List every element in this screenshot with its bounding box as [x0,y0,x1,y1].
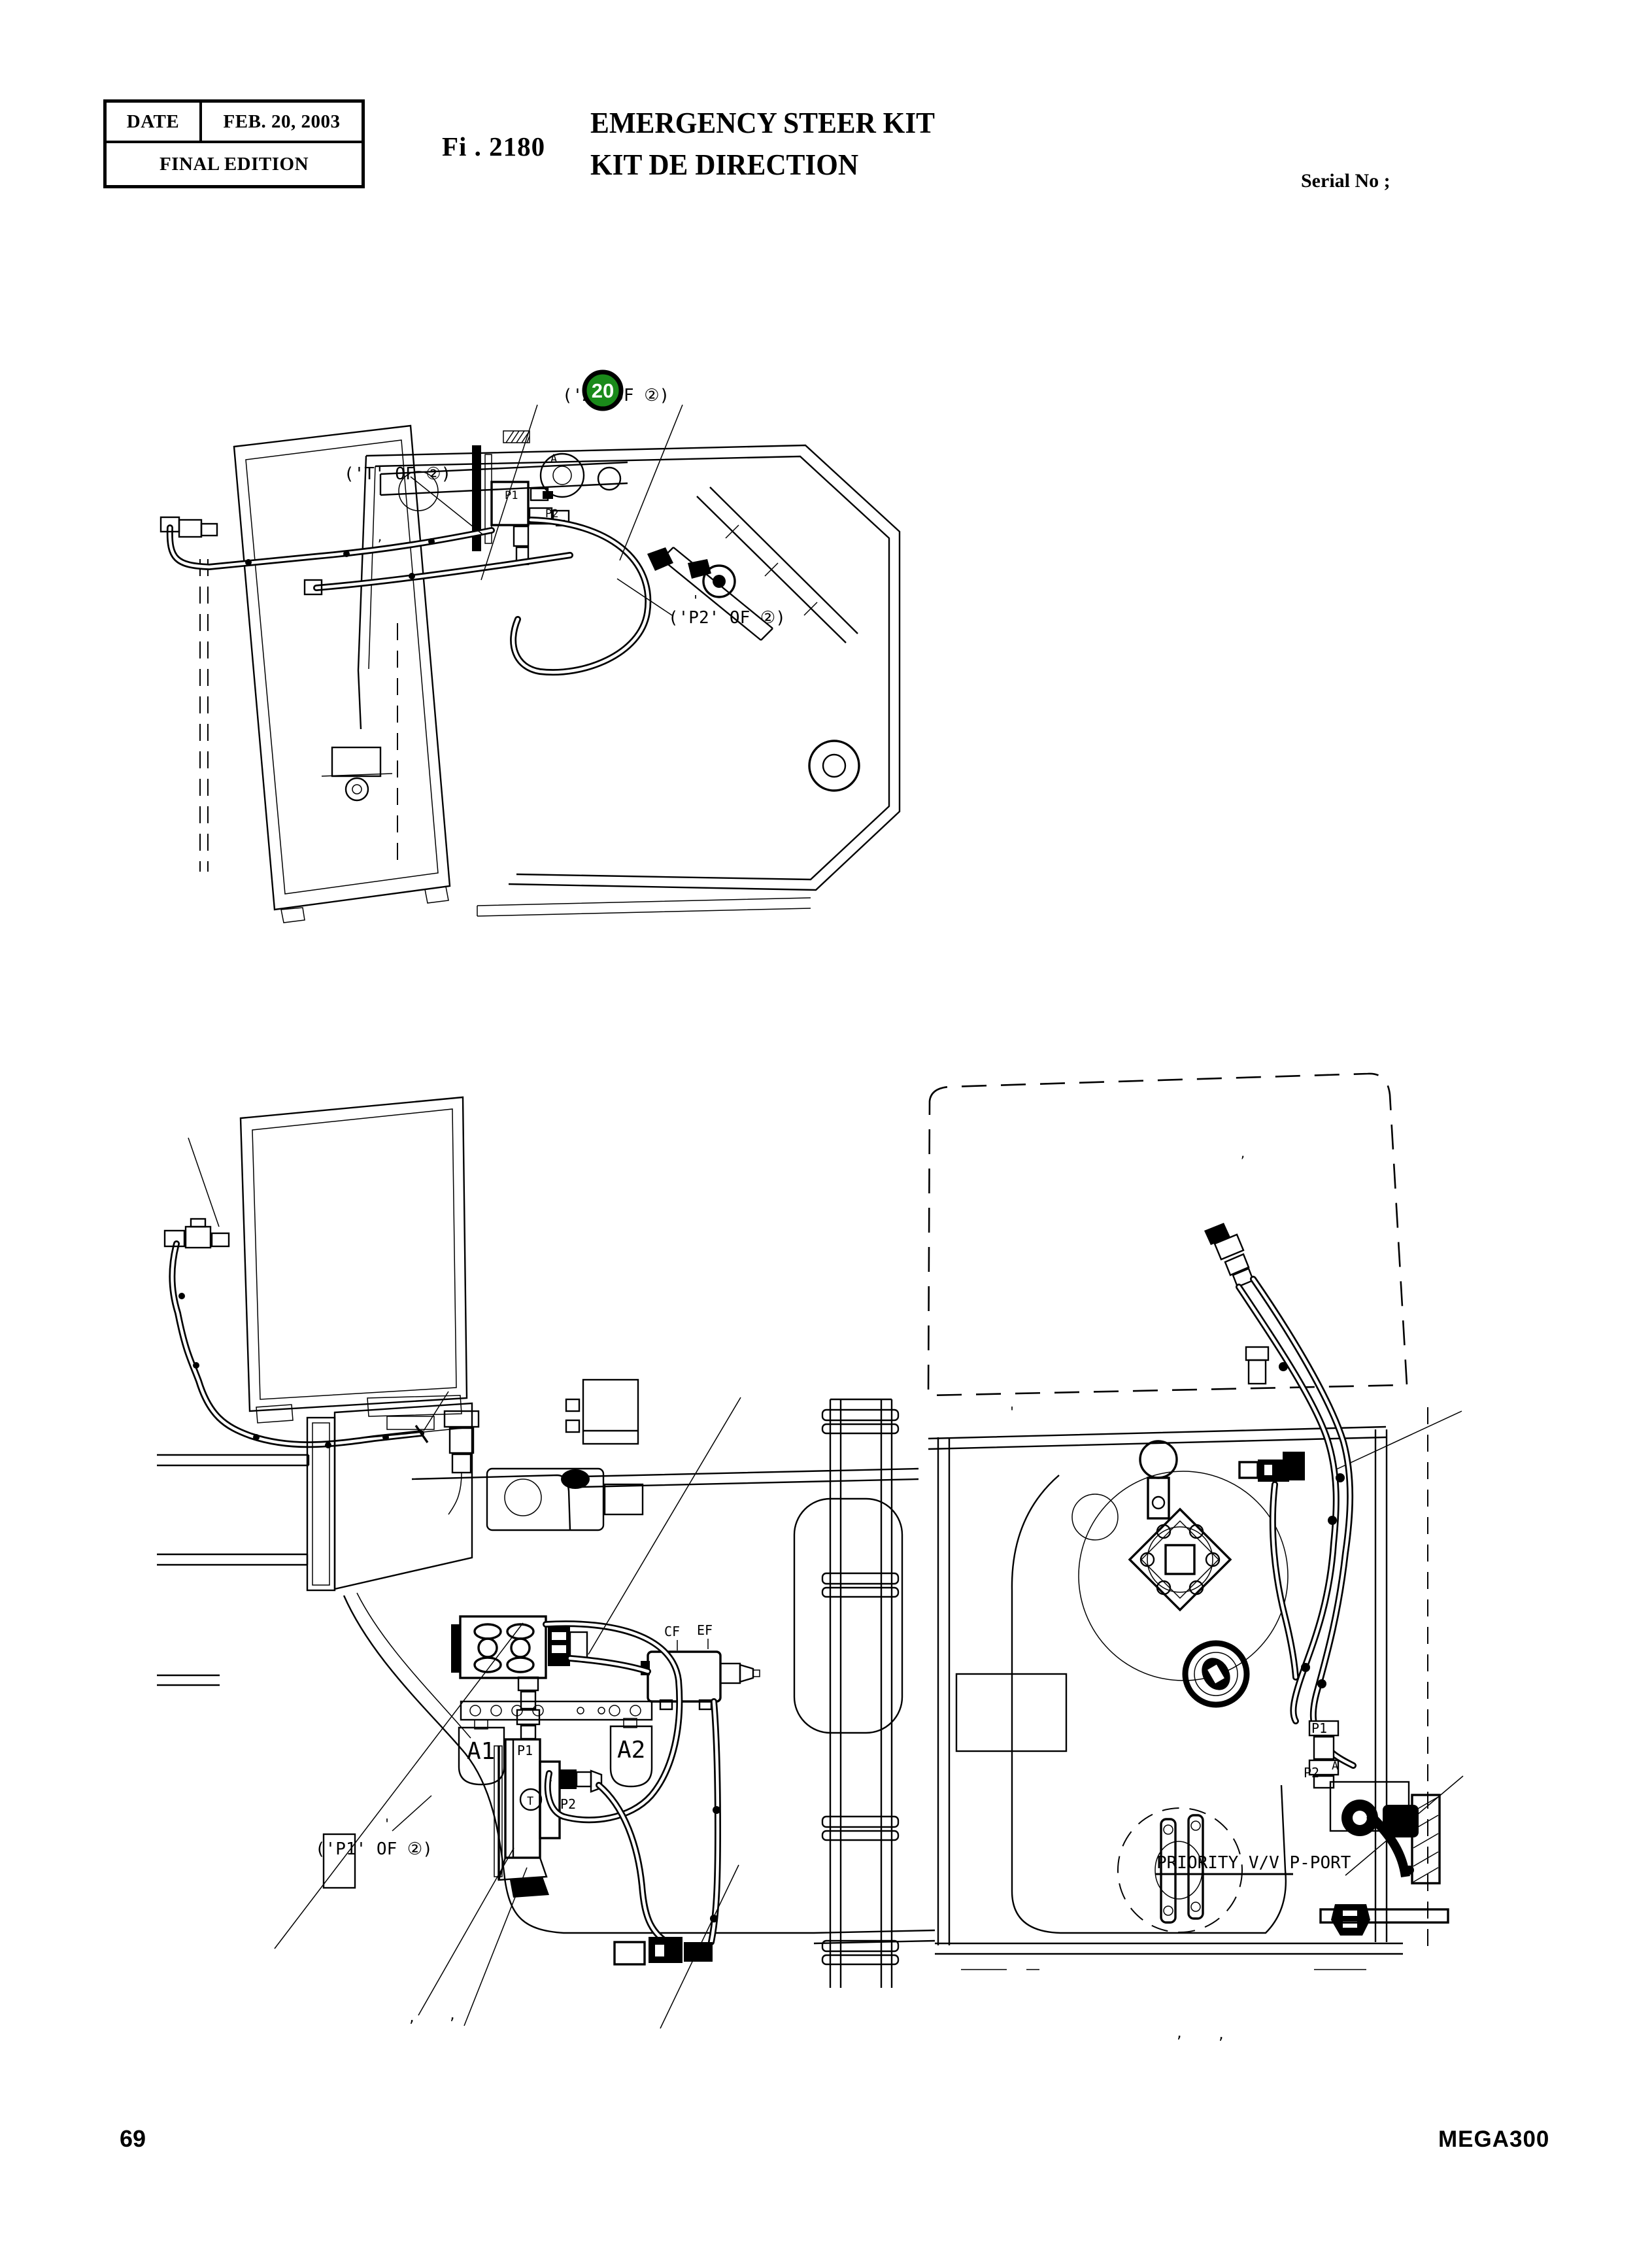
port-label-cf: CF [664,1624,680,1639]
hydraulic-hoses [161,517,648,672]
callout-p1-of-2: ('P1' OF ②) [315,1839,433,1859]
rear-frame-body [412,1380,935,1988]
callout-p2-of-2: ('P2' OF ②) [668,608,786,628]
figure-number: Fi . 2180 [442,131,545,162]
tick-mark: ' [383,1816,391,1832]
cab-dashed-outline [928,1074,1407,1395]
date-row: DATE FEB. 20, 2003 [107,103,362,143]
cab-bottom-fitting [1246,1347,1268,1384]
priority-valve-note: PRIORITY V/V P-PORT [1156,1853,1351,1873]
frame-posts [928,1407,1463,1970]
page-title-en: EMERGENCY STEER KIT [590,102,935,144]
tick-mark: , [1175,2025,1183,2041]
tick-mark: ' [1008,1404,1016,1420]
port-label-p1: P1 [1311,1720,1327,1736]
priority-note: PRIORITY V/V P-PORT [1155,1853,1351,1874]
tick-mark: , [1239,1148,1246,1161]
accumulator-a2-label: A2 [617,1737,645,1764]
upper-hose-fitting [1204,1223,1253,1287]
mid-elbow-fitting [1239,1452,1305,1482]
part-number-badge: 20 [584,372,621,409]
page-title-fr: KIT DE DIRECTION [590,144,935,186]
hose-loops [546,1624,720,1964]
date-value-cell: FEB. 20, 2003 [202,103,362,141]
steer-hoses [1239,1279,1353,1766]
accumulator-bracket-bar [461,1701,652,1720]
pump-unit [487,1469,643,1530]
tick-mark: ' [692,592,700,608]
priority-valve: CF EF [641,1622,760,1709]
hydraulic-tank [241,1097,479,1514]
steer-kit-tank-side-diagram: A1 A2 CF EF [157,1072,941,2040]
radiator-panel [200,426,450,923]
steer-kit-frame-top-diagram: A P1 P2 ('T' OF ②) ('A' OF ②) ('P2' OF ②… [150,363,915,925]
date-label: DATE [127,111,179,133]
tick-mark: , [1217,2026,1225,2042]
footer-page-number: 69 [120,2125,146,2153]
steer-kit-engine-side-diagram: P1 P2 A PRIORITY V/V P-PORT ' , , , [909,1059,1464,2053]
date-label-cell: DATE [107,103,202,141]
date-edition-table: DATE FEB. 20, 2003 FINAL EDITION [103,99,365,188]
date-value: FEB. 20, 2003 [224,111,341,133]
badge-number: 20 [592,379,614,402]
edition-label: FINAL EDITION [160,154,309,175]
port-label-a: A [550,453,557,466]
serial-no-label: Serial No ; [1301,170,1391,192]
coupler-ring [1185,1643,1247,1705]
footer-model-name: MEGA300 [1438,2126,1549,2153]
accumulator-a2: A2 [611,1718,652,1786]
lifting-eye [1140,1441,1177,1518]
solenoid-bracket-box [566,1380,638,1444]
callout-t-of-2: ('T' OF ②) [344,464,451,484]
vertical-fitting-column [517,1677,539,1739]
pump-mount-flange [1130,1509,1230,1610]
tick-mark: , [408,2009,416,2025]
tick-mark: , [377,531,383,544]
port-label-p2: P2 [1304,1765,1319,1781]
bottom-mount-bracket [322,747,392,800]
accumulator-a1-label: A1 [467,1738,495,1765]
boom-arm-ladder [822,1399,898,1988]
port-label-ef: EF [697,1622,713,1638]
port-label-t: T [527,1795,533,1808]
edition-cell: FINAL EDITION [107,143,362,186]
manual-page: DATE FEB. 20, 2003 FINAL EDITION Fi . 21… [0,0,1652,2254]
tick-mark: , [448,2007,456,2023]
leader-lines [275,1397,741,2028]
port-label-p1: P1 [505,489,518,502]
hatched-mount-block [1405,1795,1440,1883]
frame-plate-outline [358,445,900,916]
page-title: EMERGENCY STEER KIT KIT DE DIRECTION [590,102,935,186]
port-label-a: A [1332,1760,1338,1773]
accumulator-a1: A1 [459,1720,504,1784]
port-label-p2: P2 [560,1796,576,1812]
port-label-p1: P1 [517,1743,533,1758]
port-label-p2: P2 [545,507,558,521]
